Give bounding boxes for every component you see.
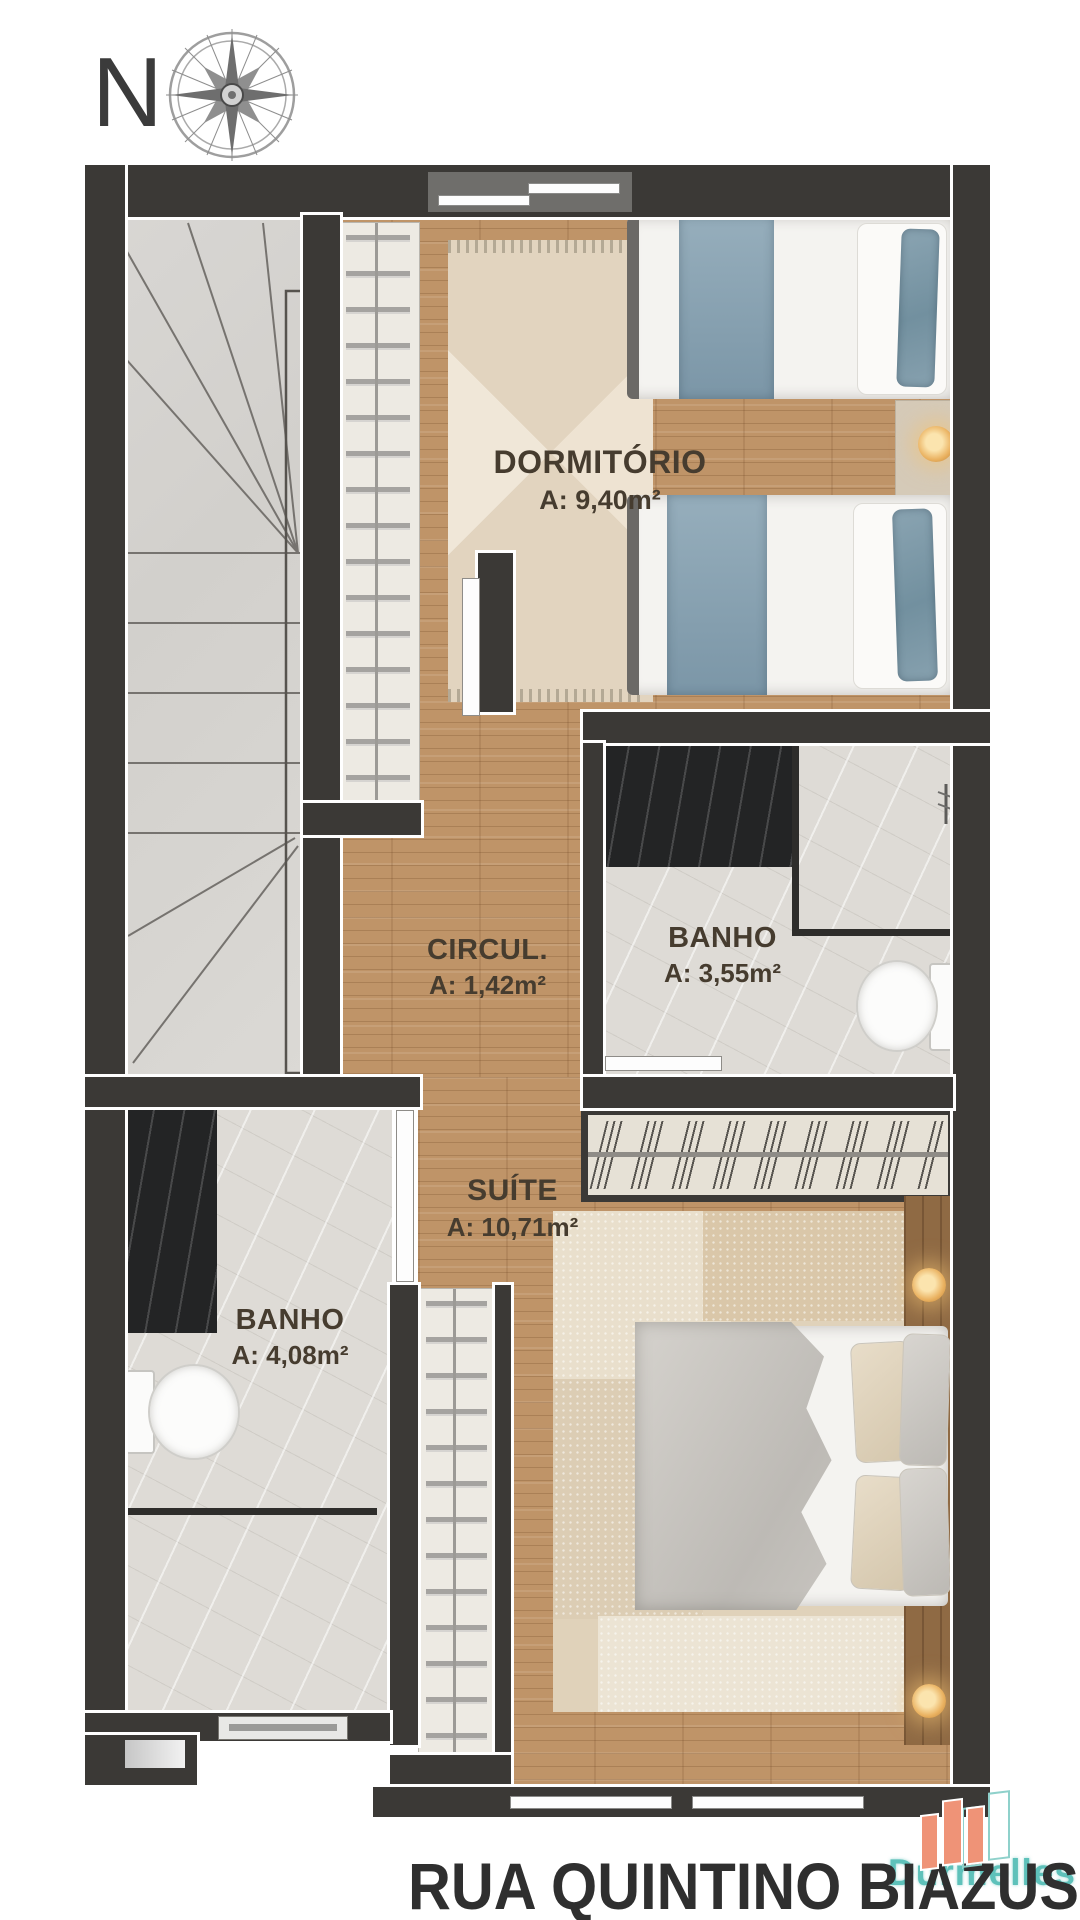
top-window bbox=[428, 172, 632, 212]
single-bed-bottom bbox=[627, 495, 955, 695]
banho1-door bbox=[605, 1056, 722, 1071]
wall-suite-bottom bbox=[373, 1787, 990, 1817]
wall-stairs bbox=[303, 215, 340, 1077]
suite-wardrobe bbox=[581, 1108, 955, 1202]
suite-pillow bbox=[899, 1467, 951, 1597]
bed-foot-trim bbox=[627, 217, 639, 399]
staircase-steps-icon bbox=[123, 218, 305, 1077]
room-name: BANHO bbox=[205, 1304, 375, 1337]
wall-closet-bottom bbox=[390, 1755, 511, 1789]
blue-accent-pillow bbox=[896, 228, 939, 387]
window-pane bbox=[438, 195, 530, 206]
room-name: BANHO bbox=[640, 922, 805, 955]
shower-partition bbox=[792, 929, 955, 936]
room-area: A: 3,55m² bbox=[640, 959, 805, 989]
hanger-rack-icon bbox=[346, 235, 410, 795]
closet-rail bbox=[588, 1152, 948, 1157]
room-label-banho2: BANHO A: 4,08m² bbox=[205, 1304, 375, 1371]
room-area: A: 9,40m² bbox=[440, 485, 760, 516]
wall-stairs-bottom bbox=[85, 1077, 420, 1107]
window-pane bbox=[229, 1724, 337, 1731]
suite-closet bbox=[418, 1288, 497, 1760]
suite-window-pane bbox=[510, 1796, 672, 1809]
banho1-counter bbox=[598, 743, 794, 867]
floor-plan-canvas: N bbox=[0, 0, 1080, 1920]
closet-rail bbox=[453, 1289, 456, 1759]
blue-throw-blanket bbox=[667, 495, 767, 695]
wall-closet-right bbox=[495, 1285, 511, 1760]
table-lamp bbox=[918, 426, 954, 462]
room-label-circul: CIRCUL. A: 1,42m² bbox=[400, 934, 575, 1001]
wall-dormitorio-stub bbox=[478, 553, 513, 712]
room-label-suite: SUÍTE A: 10,71m² bbox=[430, 1174, 595, 1242]
toilet-bowl bbox=[856, 960, 938, 1052]
banho2-window bbox=[218, 1716, 348, 1740]
room-label-dormitorio: DORMITÓRIO A: 9,40m² bbox=[440, 444, 760, 516]
room-label-banho1: BANHO A: 3,55m² bbox=[640, 922, 805, 989]
compass-rose-icon bbox=[163, 26, 301, 164]
wall-lamp bbox=[912, 1684, 946, 1718]
wall-banho1-bottom bbox=[583, 1077, 953, 1108]
rug-patch bbox=[703, 1211, 904, 1321]
dormitorio-door bbox=[462, 578, 480, 716]
banho2-door bbox=[396, 1110, 414, 1282]
suite-window-pane bbox=[692, 1796, 864, 1809]
room-area: A: 4,08m² bbox=[205, 1341, 375, 1371]
suite-pillow bbox=[899, 1333, 952, 1467]
rug-patch bbox=[598, 1616, 904, 1712]
bed-foot-trim bbox=[627, 495, 639, 695]
wall-right bbox=[953, 165, 990, 1805]
hanger-rack-icon bbox=[426, 1301, 487, 1747]
wall-left bbox=[85, 165, 125, 1740]
room-name: CIRCUL. bbox=[400, 934, 575, 967]
room-area: A: 10,71m² bbox=[430, 1213, 595, 1243]
room-name: SUÍTE bbox=[430, 1174, 595, 1209]
shower-partition bbox=[123, 1508, 377, 1515]
single-bed-top bbox=[627, 217, 955, 399]
side-window bbox=[125, 1740, 185, 1768]
wall-closet-stub bbox=[303, 803, 421, 835]
closet-rail bbox=[375, 223, 378, 808]
wall-banho1-left bbox=[583, 743, 603, 1083]
blue-throw-blanket bbox=[679, 217, 774, 399]
wall-banho2-right bbox=[390, 1285, 418, 1745]
room-area: A: 1,42m² bbox=[400, 971, 575, 1001]
north-label: N bbox=[92, 36, 163, 149]
watermark-logo-icon bbox=[905, 1786, 1035, 1886]
wall-lamp bbox=[912, 1268, 946, 1302]
rug-fringe-top bbox=[448, 240, 645, 253]
room-name: DORMITÓRIO bbox=[440, 444, 760, 481]
shower-partition bbox=[792, 743, 799, 935]
banho2-counter bbox=[123, 1107, 217, 1333]
dormitorio-closet bbox=[338, 222, 420, 809]
wall-dormitorio-divider bbox=[583, 712, 990, 743]
toilet-bowl bbox=[148, 1364, 240, 1460]
blue-accent-pillow bbox=[892, 508, 938, 681]
window-pane bbox=[528, 183, 620, 194]
